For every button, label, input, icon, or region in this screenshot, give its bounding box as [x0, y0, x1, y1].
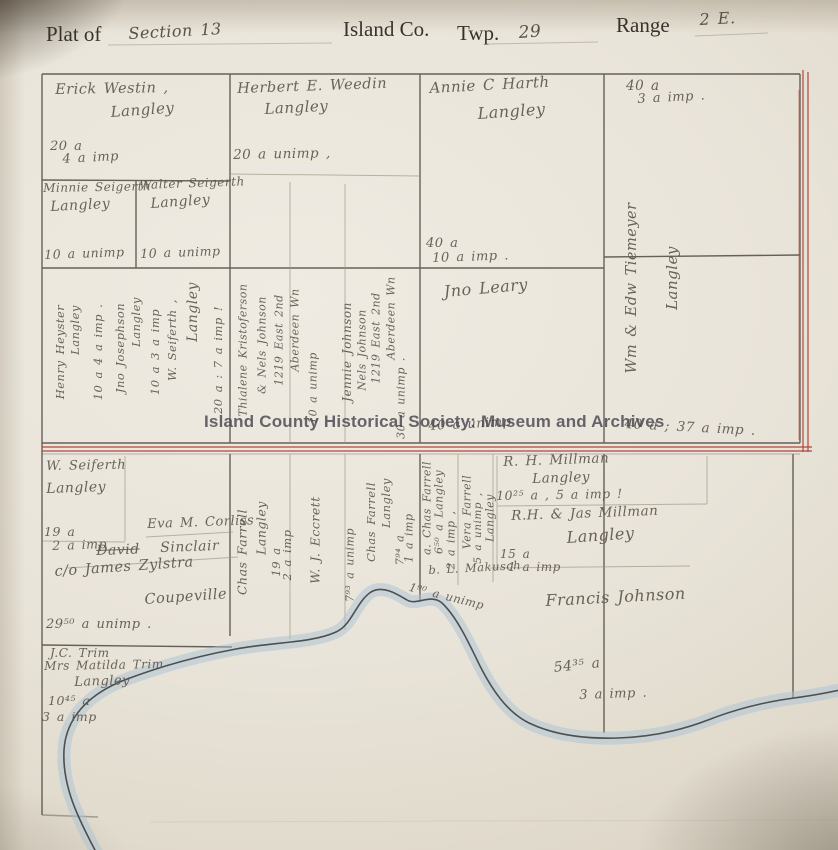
kristoferson-address2: Aberdeen Wn: [289, 288, 302, 371]
minnie-seigerth-acres: 10 a unimp: [44, 244, 125, 262]
w-seiferth-name: W. Seiferth: [46, 458, 126, 474]
sinclair-acres: 29⁵⁰ a unimp .: [46, 617, 152, 632]
weedin-city: Langley: [264, 97, 329, 118]
westin-name: Erick Westin ,: [55, 80, 169, 98]
chas-farrell1-imp: 2 a imp: [280, 530, 294, 581]
sinclair-city: Coupeville: [144, 586, 228, 608]
plat-map-page: Plat of Section 13 Island Co. Twp. 29 Ra…: [0, 0, 838, 850]
heyster-name: Henry Heyster: [53, 305, 67, 400]
francis-johnson-acres: 54³⁵ a: [553, 655, 601, 676]
trim-city: Langley: [74, 673, 130, 690]
eccrett-acres: 7⁹³ a unimp: [344, 528, 357, 602]
sinclair-care-of: c/o James Zylstra: [54, 554, 194, 580]
minnie-seigerth-name: Minnie Seigerth: [43, 179, 151, 195]
trim-acres: 10⁴⁵ a: [48, 693, 90, 708]
harth-name: Annie C Harth: [429, 73, 550, 97]
francis-johnson-imp: 3 a imp .: [579, 686, 647, 703]
leary-name: Jno Leary: [443, 275, 529, 301]
jennie-johnson-name: Jennie Johnson: [340, 302, 354, 402]
heyster-city: Langley: [68, 305, 82, 355]
tiemeyer-name: Wm & Edw Tiemeyer: [624, 202, 640, 373]
vera-farrell-city: Langley: [484, 494, 497, 542]
jennie-johnson-name2: Nels Johnson: [356, 309, 369, 390]
chas-farrell1-city: Langley: [254, 501, 269, 555]
walter-seigerth-name: Walter Seigerth: [139, 174, 245, 192]
millman1-name: R. H. Millman: [503, 450, 609, 470]
w-seiferth-city: Langley: [46, 479, 106, 497]
harth-city: Langley: [477, 99, 546, 123]
chas-farrell2-name: Chas Farrell: [364, 482, 378, 562]
w-seiferth-strip-acres: 20 a : 7 a imp !: [211, 306, 225, 414]
millman1-acres: 10²⁵ a , 5 a imp !: [496, 486, 623, 503]
weedin-acres: 20 a unimp ,: [233, 145, 331, 163]
kristoferson-name2: & Nels Johnson: [256, 296, 269, 394]
chas-farrell2-imp: 1 a imp: [403, 513, 416, 562]
harth-acres: 40 a: [426, 236, 458, 251]
minnie-seigerth-city: Langley: [50, 196, 111, 215]
trim-imp: 3 a imp: [42, 709, 97, 724]
makusch-acres: 1⁹⁰ a unimp: [408, 580, 486, 612]
sinclair-last-name: Sinclair: [160, 538, 219, 556]
w-seiferth-strip-name: W. Seiferth ,: [165, 299, 179, 381]
watermark: Island County Historical Society: Museum…: [204, 412, 634, 432]
millman2-name: R.H. & Jas Millman: [511, 503, 659, 524]
heyster-acres: 10 a 4 a imp .: [91, 304, 105, 401]
sinclair-first-name: David: [96, 541, 140, 559]
vera-farrell-acres: 5 a unimp ,: [472, 492, 484, 563]
weedin-name: Herbert E. Weedin: [237, 76, 387, 97]
millman2-imp: 1 a imp: [508, 560, 561, 574]
francis-johnson-name: Francis Johnson: [545, 584, 686, 610]
jennie-johnson-address: 1219 East 2nd: [370, 292, 383, 383]
josephson-city: Langley: [129, 297, 143, 347]
millman2-city: Langley: [566, 523, 635, 547]
westin-imp: 4 a imp: [62, 149, 119, 167]
tiemeyer-imp: 3 a imp .: [637, 88, 706, 107]
kristoferson-address: 1219 East 2nd: [273, 294, 286, 385]
josephson-acres: 10 a 3 a imp: [148, 309, 162, 395]
millman2-acres: 15 a: [500, 547, 530, 561]
chas-farrell2-city: Langley: [379, 478, 393, 528]
josephson-name: Jno Josephson: [113, 303, 127, 393]
millman1-city: Langley: [532, 469, 590, 487]
eccrett-name: W. J. Eccrett: [308, 496, 323, 584]
westin-city: Langley: [110, 99, 175, 121]
walter-seigerth-acres: 10 a unimp: [140, 243, 221, 261]
jennie-johnson-address2: Aberdeen Wn: [385, 276, 398, 359]
w-seiferth-strip-city: Langley: [185, 282, 201, 342]
trim-name2: Mrs Matilda Trim: [44, 657, 164, 673]
walter-seigerth-city: Langley: [150, 192, 211, 212]
harth-imp: 10 a imp .: [432, 248, 509, 266]
chas-farrell1-name: Chas Farrell: [235, 509, 250, 595]
tiemeyer-city: Langley: [663, 246, 681, 310]
kristoferson-name: Thialene Kristoferson: [237, 284, 250, 417]
